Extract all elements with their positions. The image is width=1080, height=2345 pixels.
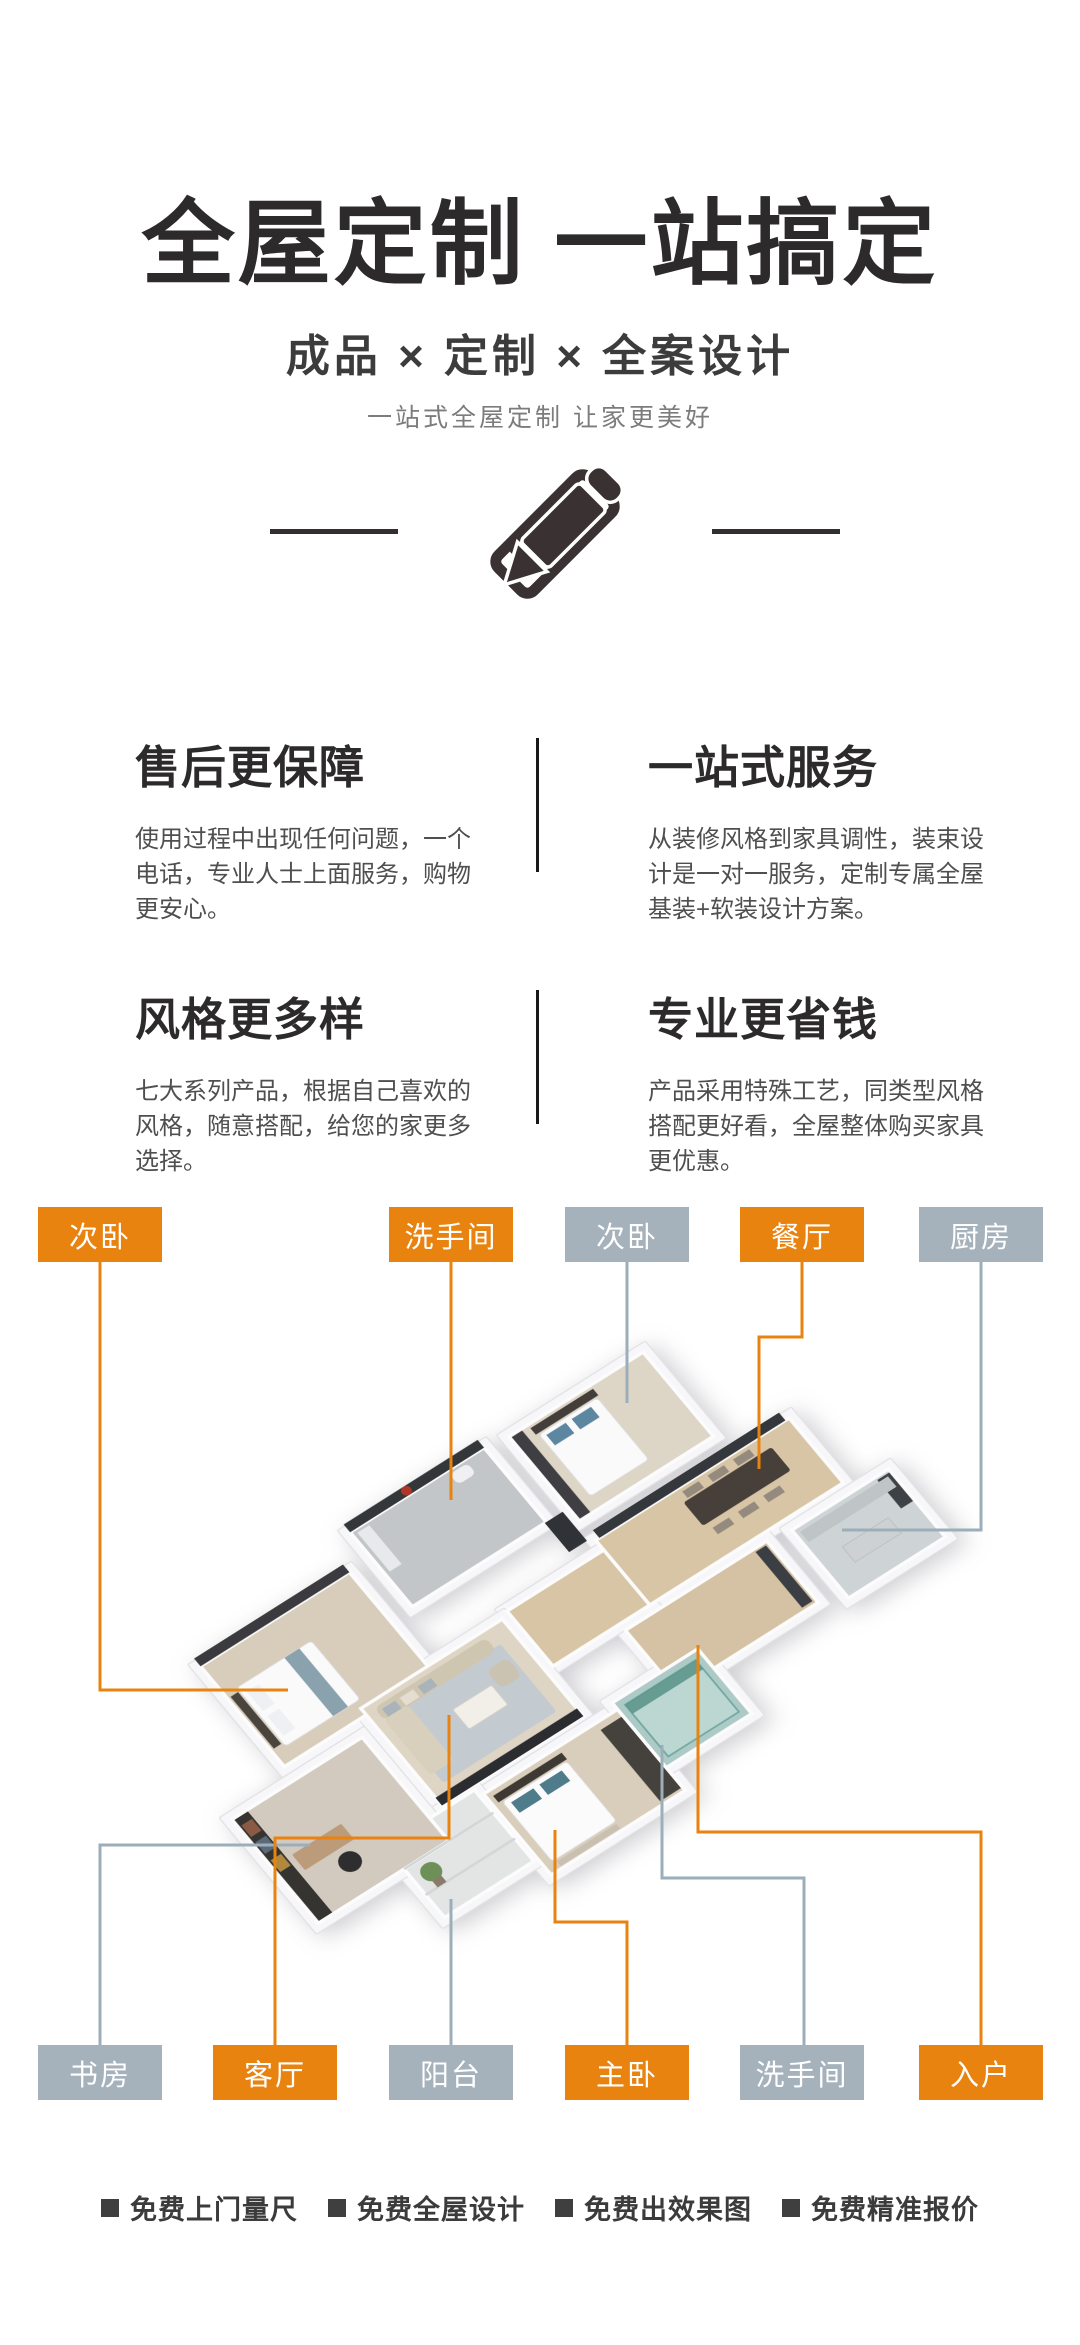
- footer-item-label: 免费全屋设计: [357, 2188, 525, 2227]
- room-label-bottom-living: 客厅: [213, 2045, 337, 2100]
- feature-divider-top: [536, 738, 539, 872]
- room-label-top-bedroom2b: 次卧: [565, 1207, 689, 1262]
- footer-item-label: 免费上门量尺: [130, 2188, 298, 2227]
- page-subtitle: 成品 × 定制 × 全案设计: [0, 320, 1080, 384]
- feature-title: 一站式服务: [648, 731, 1040, 796]
- room-label-bottom-study: 书房: [38, 2045, 162, 2100]
- footer-item-label: 免费出效果图: [584, 2188, 752, 2227]
- feature-title: 售后更保障: [135, 731, 527, 796]
- divider-line-right: [712, 529, 840, 534]
- feature-desc: 从装修风格到家具调性，装束设计是一对一服务，定制专属全屋基装+软装设计方案。: [648, 822, 1004, 927]
- feature-desc: 产品采用特殊工艺，同类型风格搭配更好看，全屋整体购买家具更优惠。: [648, 1074, 1004, 1179]
- feature-desc: 使用过程中出现任何问题，一个电话，专业人士上面服务，购物更安心。: [135, 822, 491, 927]
- square-bullet-icon: [555, 2199, 573, 2217]
- footer-services: 免费上门量尺 免费全屋设计 免费出效果图 免费精准报价: [0, 2188, 1080, 2227]
- floor-plan-figure: [0, 1250, 1080, 2060]
- room-label-top-kitchen: 厨房: [919, 1207, 1043, 1262]
- room-label-top-dining: 餐厅: [740, 1207, 864, 1262]
- footer-item-render: 免费出效果图: [555, 2188, 752, 2227]
- feature-styles: 风格更多样 七大系列产品，根据自己喜欢的风格，随意搭配，给您的家更多选择。: [135, 983, 527, 1179]
- promo-page: 全屋定制 一站搞定 成品 × 定制 × 全案设计 一站式全屋定制 让家更美好 售…: [0, 0, 1080, 2345]
- room-label-bottom-bathroom: 洗手间: [740, 2045, 864, 2100]
- feature-divider-bottom: [536, 990, 539, 1124]
- feature-title: 专业更省钱: [648, 983, 1040, 1048]
- footer-item-quote: 免费精准报价: [782, 2188, 979, 2227]
- feature-aftersales: 售后更保障 使用过程中出现任何问题，一个电话，专业人士上面服务，购物更安心。: [135, 731, 527, 927]
- feature-onestop: 一站式服务 从装修风格到家具调性，装束设计是一对一服务，定制专属全屋基装+软装设…: [648, 731, 1040, 927]
- page-tagline: 一站式全屋定制 让家更美好: [0, 398, 1080, 434]
- footer-item-measure: 免费上门量尺: [101, 2188, 298, 2227]
- feature-savings: 专业更省钱 产品采用特殊工艺，同类型风格搭配更好看，全屋整体购买家具更优惠。: [648, 983, 1040, 1179]
- feature-title: 风格更多样: [135, 983, 527, 1048]
- room-label-top-bedroom2a: 次卧: [38, 1207, 162, 1262]
- page-title: 全屋定制 一站搞定: [0, 168, 1080, 303]
- square-bullet-icon: [328, 2199, 346, 2217]
- room-label-top-bathroom: 洗手间: [389, 1207, 513, 1262]
- feature-desc: 七大系列产品，根据自己喜欢的风格，随意搭配，给您的家更多选择。: [135, 1074, 491, 1179]
- room-label-bottom-balcony: 阳台: [389, 2045, 513, 2100]
- footer-item-design: 免费全屋设计: [328, 2188, 525, 2227]
- divider-line-left: [270, 529, 398, 534]
- room-label-bottom-entry: 入户: [919, 2045, 1043, 2100]
- square-bullet-icon: [782, 2199, 800, 2217]
- square-bullet-icon: [101, 2199, 119, 2217]
- pencil-ruler-icon: [473, 448, 637, 620]
- footer-item-label: 免费精准报价: [811, 2188, 979, 2227]
- room-label-bottom-master: 主卧: [565, 2045, 689, 2100]
